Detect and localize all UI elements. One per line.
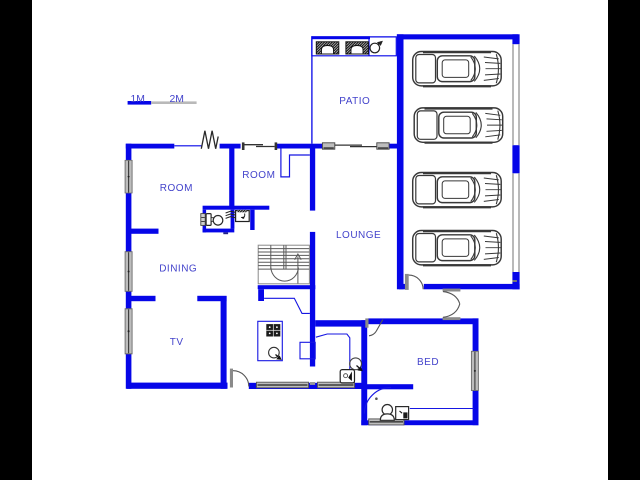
- svg-text:BED: BED: [417, 357, 439, 368]
- svg-text:DINING: DINING: [159, 263, 197, 274]
- svg-text:LOUNGE: LOUNGE: [336, 230, 381, 241]
- svg-text:ROOM: ROOM: [160, 183, 193, 194]
- svg-text:2M: 2M: [170, 94, 184, 105]
- svg-text:1M: 1M: [131, 94, 145, 105]
- svg-text:PATIO: PATIO: [339, 96, 370, 107]
- svg-text:TV: TV: [170, 337, 184, 348]
- svg-text:ROOM: ROOM: [242, 170, 275, 181]
